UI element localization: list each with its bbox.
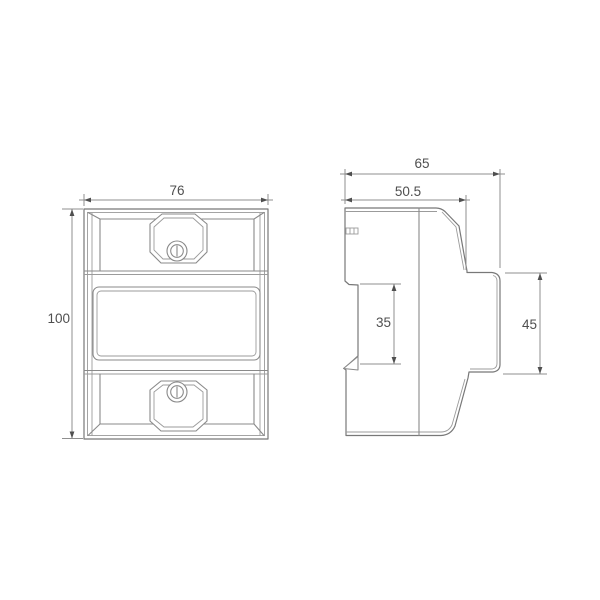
top-terminal-cover (150, 214, 207, 263)
bottom-terminal-cover (150, 381, 207, 431)
dimension-side-depth: 65 (340, 156, 505, 268)
side-profile-outline (344, 208, 500, 436)
dimension-front-width: 76 (79, 183, 273, 206)
screw-icon (167, 241, 187, 261)
dimension-recess-height: 35 (360, 284, 401, 364)
screw-icon (167, 382, 187, 402)
din-rail-clip-tooth-icon (344, 357, 359, 371)
side-depth-label: 65 (414, 156, 429, 171)
dimension-side-front-depth: 50.5 (341, 184, 470, 270)
drawing-svg: 76 100 (0, 0, 600, 600)
rear-height-label: 45 (522, 317, 537, 332)
vent-slots-icon (346, 228, 358, 234)
side-view: 65 50.5 35 45 (340, 156, 547, 436)
front-width-label: 76 (169, 183, 184, 198)
side-wall-thickness-lines (345, 212, 497, 433)
dimension-front-height: 100 (47, 209, 83, 439)
technical-drawing-page: 76 100 (0, 0, 600, 600)
front-height-label: 100 (47, 311, 70, 326)
dimension-rear-height: 45 (503, 273, 547, 374)
recess-height-label: 35 (376, 315, 391, 330)
side-front-depth-label: 50.5 (395, 184, 421, 199)
front-view: 76 100 (47, 183, 273, 439)
display-window (93, 287, 260, 360)
